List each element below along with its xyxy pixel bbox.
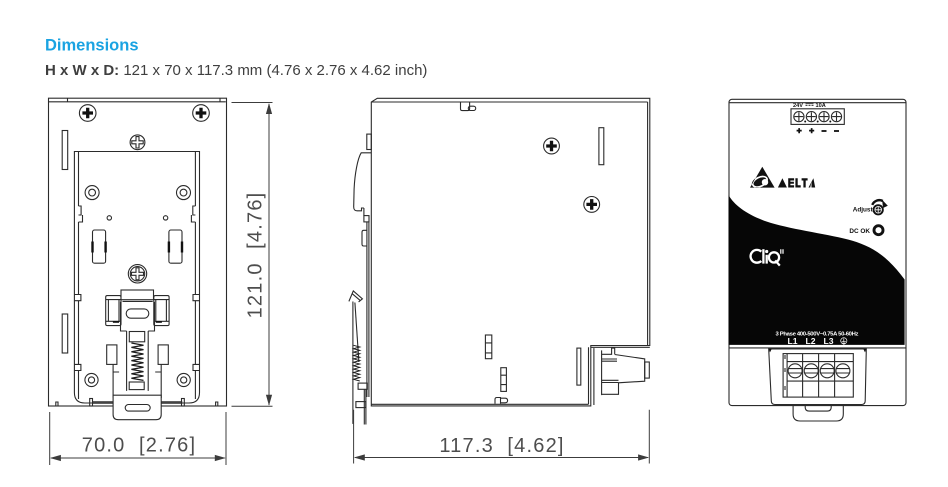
svg-text:24V: 24V	[793, 103, 803, 109]
svg-text:10A: 10A	[816, 103, 826, 109]
svg-text:Dimensions: Dimensions	[45, 36, 139, 54]
svg-text:117.3 [4.62]: 117.3 [4.62]	[439, 435, 564, 457]
svg-text:L2: L2	[805, 336, 815, 346]
svg-text:DC OK: DC OK	[849, 228, 870, 235]
svg-text:121.0 [4.76]: 121.0 [4.76]	[245, 192, 267, 319]
svg-text:Adjust: Adjust	[853, 207, 874, 214]
svg-text:L1: L1	[787, 336, 797, 346]
svg-text:H x W x D: 121 x 70 x 117.3 mm: H x W x D: 121 x 70 x 117.3 mm (4.76 x 2…	[45, 62, 427, 79]
svg-text:L3: L3	[823, 336, 833, 346]
svg-text:70.0 [2.76]: 70.0 [2.76]	[82, 435, 196, 457]
